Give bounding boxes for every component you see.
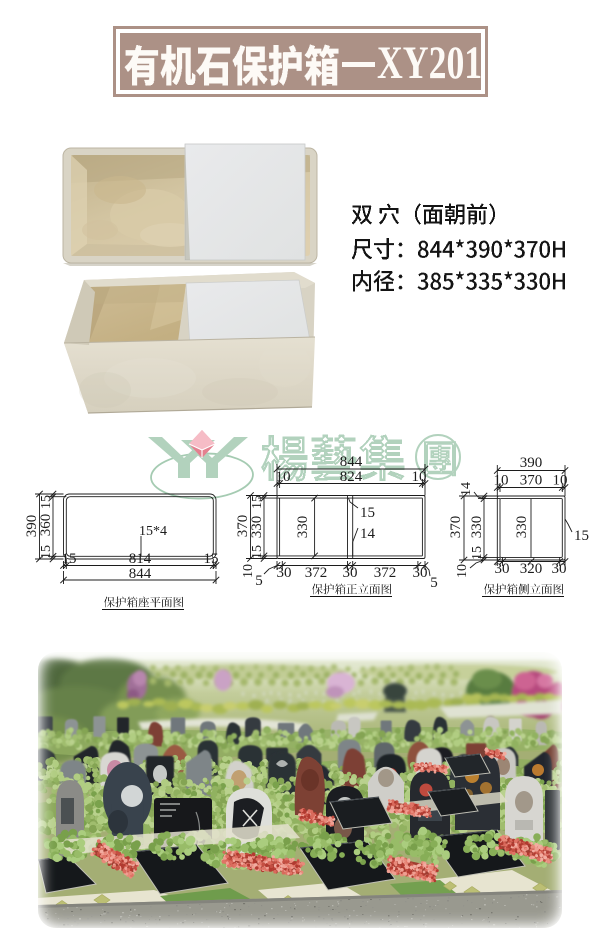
svg-text:14: 14 [360,526,376,542]
svg-text:10: 10 [276,469,291,485]
svg-text:30: 30 [343,565,358,581]
svg-text:15: 15 [574,528,589,544]
svg-text:30: 30 [495,561,510,577]
svg-text:372: 372 [374,565,397,581]
svg-text:10: 10 [241,564,256,578]
svg-text:15: 15 [360,505,375,521]
svg-text:15: 15 [470,546,485,560]
svg-text:814: 814 [129,551,152,567]
svg-text:844: 844 [129,566,152,582]
svg-text:10: 10 [455,564,470,578]
svg-text:30: 30 [413,565,428,581]
svg-text:824: 824 [340,469,363,485]
svg-text:330: 330 [469,516,485,539]
svg-text:15: 15 [250,495,265,509]
svg-text:844: 844 [340,454,363,470]
svg-text:10: 10 [412,469,427,485]
svg-text:15: 15 [204,551,219,567]
svg-text:15*4: 15*4 [139,524,167,539]
svg-text:372: 372 [305,565,328,581]
svg-text:15: 15 [39,545,54,559]
svg-text:15: 15 [250,545,265,559]
svg-text:330: 330 [249,516,265,539]
svg-text:370: 370 [448,516,464,539]
svg-text:15: 15 [39,495,54,509]
svg-text:390: 390 [520,455,543,471]
svg-text:330: 330 [514,516,530,539]
svg-text:15: 15 [62,551,77,567]
svg-text:10: 10 [494,473,509,489]
svg-text:330: 330 [295,516,311,539]
svg-text:10: 10 [553,473,568,489]
svg-text:370: 370 [520,473,543,489]
svg-text:5: 5 [255,573,263,589]
svg-text:14: 14 [459,482,474,496]
svg-text:30: 30 [277,565,292,581]
svg-text:320: 320 [520,561,543,577]
svg-text:30: 30 [552,561,567,577]
svg-text:360: 360 [38,514,54,537]
svg-text:5: 5 [430,575,438,591]
